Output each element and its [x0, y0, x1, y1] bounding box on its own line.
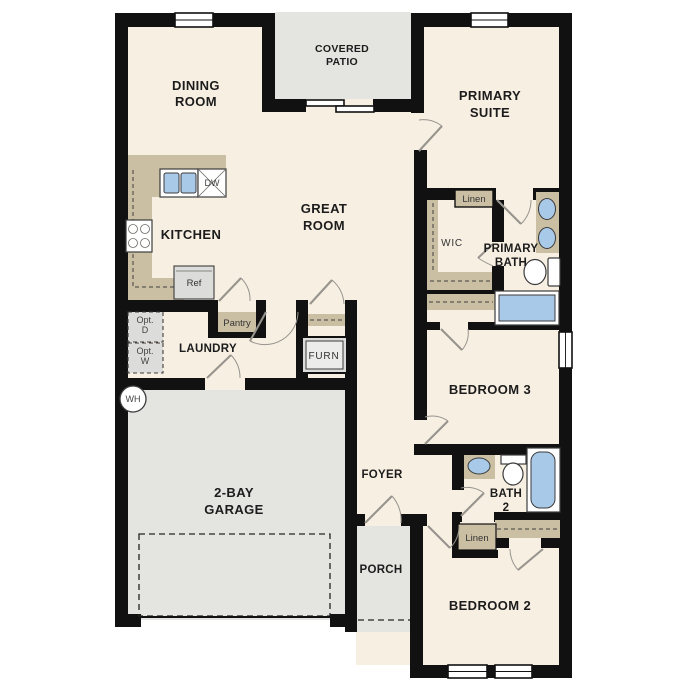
furnace-label: FURN — [309, 351, 340, 362]
primary-bath-label: BATH — [495, 257, 527, 269]
primary-bath-tub-basin — [499, 295, 555, 321]
wall — [559, 368, 572, 678]
wall — [452, 550, 498, 558]
pantry-label: Pantry — [223, 318, 251, 329]
garage-label: 2-BAY — [214, 485, 254, 500]
wall — [115, 13, 128, 627]
wall — [115, 614, 141, 627]
linen-lower-label: Linen — [465, 533, 488, 544]
toilet-bowl — [524, 260, 546, 285]
wall — [262, 99, 306, 112]
toilet-bowl — [503, 463, 523, 485]
wall — [495, 538, 509, 548]
foyer-label: FOYER — [361, 469, 403, 481]
porch-floor — [357, 526, 410, 632]
linen-upper-label: Linen — [462, 194, 485, 205]
wall — [414, 188, 427, 420]
optional-washer-label: Opt. — [136, 346, 153, 356]
dining-room-label: DINING — [172, 78, 220, 93]
wic-label: WIC — [441, 238, 463, 249]
water-heater-label: WH — [126, 394, 141, 404]
great-room-label: ROOM — [303, 218, 345, 233]
sink-basin — [164, 173, 179, 193]
wall — [468, 322, 495, 330]
refrigerator-label: Ref — [187, 278, 202, 289]
wall — [452, 512, 462, 522]
wall — [213, 13, 262, 27]
bath2-label: 2 — [503, 502, 510, 514]
wall — [410, 665, 448, 678]
laundry-label: LAUNDRY — [179, 343, 237, 355]
covered-patio-label: COVERED — [315, 43, 369, 55]
bedroom2-label: BEDROOM 2 — [449, 598, 531, 613]
wall — [262, 13, 275, 112]
bath2-tub-basin — [531, 452, 555, 508]
primary-suite-label: SUITE — [470, 105, 510, 120]
wall — [401, 514, 412, 526]
floor-plan-page: DINING ROOM COVERED PATIO PRIMARY SUITE … — [0, 0, 687, 687]
kitchen-label: KITCHEN — [161, 227, 222, 242]
sink-basin — [181, 173, 196, 193]
porch-label: PORCH — [359, 564, 402, 576]
wall — [487, 665, 495, 678]
wall — [541, 538, 560, 548]
wall — [414, 322, 440, 330]
wall — [532, 665, 572, 678]
bedroom3-label: BEDROOM 3 — [449, 382, 531, 397]
stove — [126, 220, 152, 252]
toilet-tank — [548, 258, 560, 286]
sliding-door-panel — [336, 106, 374, 112]
floor-plan: DINING ROOM COVERED PATIO PRIMARY SUITE … — [0, 0, 687, 687]
primary-bath-sink — [539, 228, 556, 249]
great-room-label: GREAT — [301, 201, 348, 216]
wall — [357, 514, 365, 526]
bath2-label: BATH — [490, 488, 522, 500]
primary-suite-label: PRIMARY — [459, 88, 521, 103]
sliding-door-panel — [306, 100, 344, 106]
primary-bath-label: PRIMARY — [484, 243, 539, 255]
optional-dryer-label: Opt. — [136, 315, 153, 325]
covered-patio-label: PATIO — [326, 56, 358, 68]
wall — [424, 13, 471, 27]
bath2-sink — [468, 458, 490, 474]
wall — [452, 444, 464, 490]
optional-washer-label: W — [141, 356, 150, 366]
wall — [411, 13, 424, 113]
garage-label: GARAGE — [204, 502, 263, 517]
dishwasher-label: DW — [205, 178, 220, 188]
primary-bath-sink — [539, 199, 556, 220]
optional-dryer-label: D — [142, 325, 149, 335]
wall — [245, 378, 345, 390]
wall — [115, 300, 208, 312]
wall — [410, 514, 423, 678]
wall — [115, 13, 175, 27]
wall — [559, 13, 572, 332]
dining-room-label: ROOM — [175, 94, 217, 109]
